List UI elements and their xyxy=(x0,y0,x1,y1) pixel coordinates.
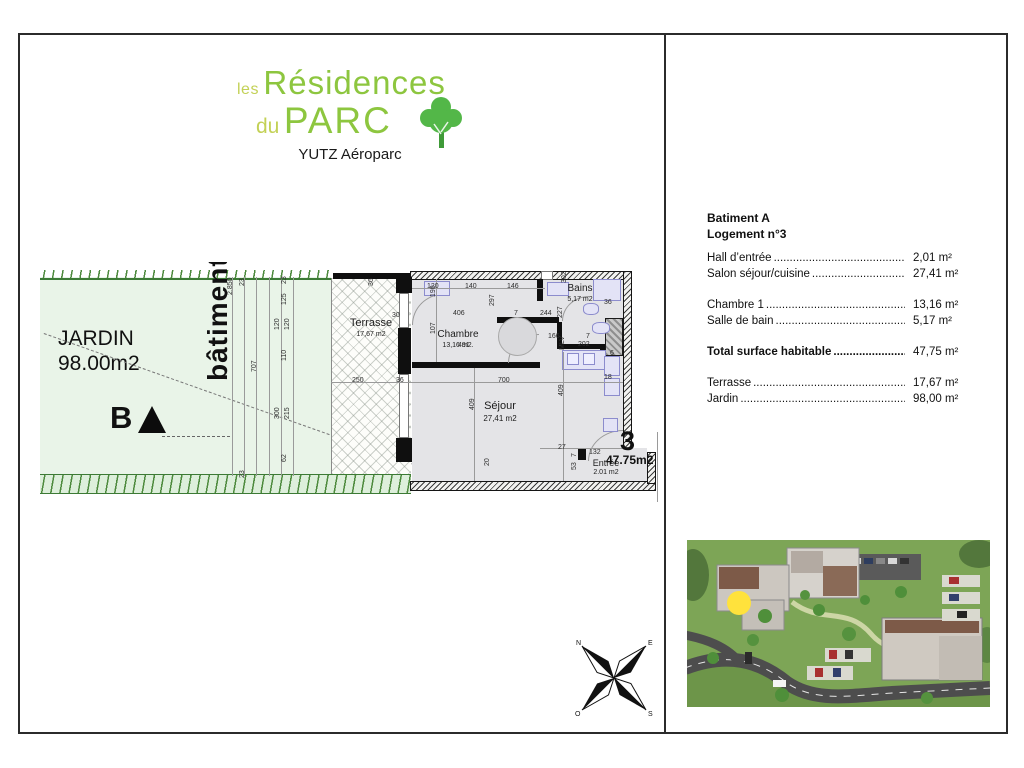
logo-les: les xyxy=(237,81,259,98)
dimension-label: 132 xyxy=(589,449,601,456)
surface-value: 27,41 m² xyxy=(907,268,985,280)
furniture-circle xyxy=(498,317,537,356)
aerial-site-render xyxy=(687,540,990,707)
dimension-label: 227 xyxy=(557,306,564,318)
dimension-label: 36 xyxy=(604,299,612,306)
surface-value: 13,16 m² xyxy=(907,299,985,311)
surface-value: 98,00 m² xyxy=(907,393,985,405)
dimension-label: 700 xyxy=(498,377,510,384)
kitchen-fixture xyxy=(603,418,618,432)
dimension-label: 23 xyxy=(239,470,246,478)
bathroom-label: Bains 5,17 m2 xyxy=(560,283,600,304)
tree-icon xyxy=(416,94,466,150)
section-marker-triangle-icon xyxy=(138,406,166,433)
pillar xyxy=(398,328,411,374)
grass-edge-bottom xyxy=(40,474,411,494)
building-title: Batiment A xyxy=(707,210,786,226)
dimension-label: 110 xyxy=(281,350,288,361)
location-marker xyxy=(727,591,751,615)
dimension-label: 244 xyxy=(540,310,552,317)
dimension-label: 406 xyxy=(453,310,465,317)
dim-line xyxy=(474,368,475,481)
leader-dots: ........................................… xyxy=(812,268,905,280)
appliance-icon xyxy=(583,353,595,365)
dimension-label: 107 xyxy=(430,322,437,334)
surface-value: 5,17 m² xyxy=(907,315,985,327)
dim-line xyxy=(540,448,622,449)
leader-dots: ........................................… xyxy=(774,252,905,264)
surface-row: Salle de bain...........................… xyxy=(707,315,985,331)
dimension-label: 140 xyxy=(465,283,477,290)
dimension-label: 202 xyxy=(578,341,590,348)
surface-label: Terrasse xyxy=(707,377,751,389)
dimension-label: 300 xyxy=(274,407,281,419)
dim-line xyxy=(293,277,294,476)
garden-name: JARDIN xyxy=(58,326,140,351)
compass-e: E xyxy=(648,640,653,647)
surface-value: 17,67 m² xyxy=(907,377,985,389)
logo-du: du xyxy=(256,115,279,138)
dimension-label: 53 xyxy=(571,462,578,470)
unit-total-area: 47.75m2 xyxy=(606,453,653,467)
surface-label: Jardin xyxy=(707,393,738,405)
dimension-label: 297 xyxy=(489,294,496,306)
surface-row: Terrasse................................… xyxy=(707,377,985,393)
dimension-label: 27 xyxy=(558,444,566,451)
leader-dots: ........................................… xyxy=(753,377,905,389)
garden-label: JARDIN 98.00m2 xyxy=(58,326,140,376)
dimension-label: 7 xyxy=(586,333,590,340)
kitchen-fixture xyxy=(604,356,620,376)
dimension-label: 23 xyxy=(239,278,246,286)
dimension-label: 36 xyxy=(396,377,404,384)
logo-parc: PARC xyxy=(284,100,392,141)
dimension-label: 215 xyxy=(284,407,291,419)
surface-label: Salon séjour/cuisine xyxy=(707,268,810,280)
dim-line xyxy=(563,352,564,481)
dimension-label: 120 xyxy=(284,318,291,330)
dimension-label: 120 xyxy=(274,318,281,330)
leader-dots: ........................................… xyxy=(740,393,905,405)
dimension-label: 409 xyxy=(469,398,476,410)
surface-row: Salon séjour/cuisine....................… xyxy=(707,268,985,284)
appliance-icon xyxy=(567,353,579,365)
surface-label: Salle de bain xyxy=(707,315,774,327)
dim-line xyxy=(281,277,282,476)
garden-area xyxy=(40,277,331,476)
surface-row: Jardin..................................… xyxy=(707,393,985,409)
leader-dots: ........................................… xyxy=(776,315,906,327)
surface-value: 47,75 m² xyxy=(907,346,985,358)
logo-line1: les Résidences xyxy=(237,64,446,102)
dim-line xyxy=(269,277,270,476)
dimension-label: 7 xyxy=(514,310,518,317)
window xyxy=(399,293,409,328)
axis-dashdot-line xyxy=(162,436,230,437)
dimension-label: 30 xyxy=(392,312,400,319)
dimension-label: 7 xyxy=(571,453,578,457)
compass-o: O xyxy=(575,711,581,718)
compass-icon: N E O S xyxy=(572,636,656,720)
basin-fixture xyxy=(592,322,610,334)
dim-line xyxy=(256,277,257,476)
dimension-label: 125 xyxy=(281,293,288,305)
dim-line xyxy=(331,382,623,383)
leader-dots: ........................................… xyxy=(766,299,905,311)
dimension-label: 6 xyxy=(610,350,614,357)
pillar xyxy=(396,438,412,462)
terrace-label: Terrasse 17,67 m2 xyxy=(336,317,406,340)
wall-bottom xyxy=(410,481,656,491)
unit-title: Logement n°3 xyxy=(707,226,786,242)
dim-line xyxy=(657,432,658,502)
wall xyxy=(537,279,543,301)
living-label: Séjour 27,41 m2 xyxy=(472,400,528,424)
dimension-label: 2.850 xyxy=(227,277,234,295)
surface-row: Chambre 1...............................… xyxy=(707,299,985,315)
surface-label: Chambre 1 xyxy=(707,299,764,311)
plan-sheet: les Résidences du PARC YUTZ Aéroparc JAR… xyxy=(0,0,1024,768)
dimension-label: 409 xyxy=(558,384,565,396)
logo-line2: du PARC xyxy=(256,100,392,142)
dimension-label: 190 xyxy=(430,285,437,297)
dim-line xyxy=(244,277,245,476)
surface-value: 2,01 m² xyxy=(907,252,985,264)
dimension-label: 491 xyxy=(458,342,470,349)
dimension-label: 166 xyxy=(548,333,560,340)
surface-row: Total surface habitable.................… xyxy=(707,346,985,362)
dimension-label: 23 xyxy=(281,276,288,284)
dimension-label: 250 xyxy=(352,377,364,384)
dimension-label: 146 xyxy=(507,283,519,290)
dimension-label: 302 xyxy=(561,271,568,283)
dimension-label: 707 xyxy=(251,360,258,372)
wall-right xyxy=(623,271,632,449)
info-title: Batiment A Logement n°3 xyxy=(707,210,786,242)
compass-n: N xyxy=(576,640,581,647)
pillar xyxy=(396,277,412,293)
logo-subtitle: YUTZ Aéroparc xyxy=(240,146,460,163)
dimension-label: MLV xyxy=(559,336,566,350)
surface-row: Hall d’entrée...........................… xyxy=(707,252,985,268)
compass-s: S xyxy=(648,711,653,718)
section-marker-letter: B xyxy=(110,400,132,436)
surface-label: Total surface habitable xyxy=(707,346,831,358)
surface-table: Hall d’entrée...........................… xyxy=(707,252,985,409)
dimension-label: 18 xyxy=(604,374,612,381)
section-divider xyxy=(664,33,666,732)
wc-fixture xyxy=(583,303,599,315)
dimension-label: 36 xyxy=(368,278,375,286)
dim-line xyxy=(232,277,233,476)
dimension-label: 62 xyxy=(281,454,288,462)
surface-label: Hall d’entrée xyxy=(707,252,772,264)
dimension-label: 20 xyxy=(484,458,491,466)
leader-dots: ........................................… xyxy=(833,346,905,358)
